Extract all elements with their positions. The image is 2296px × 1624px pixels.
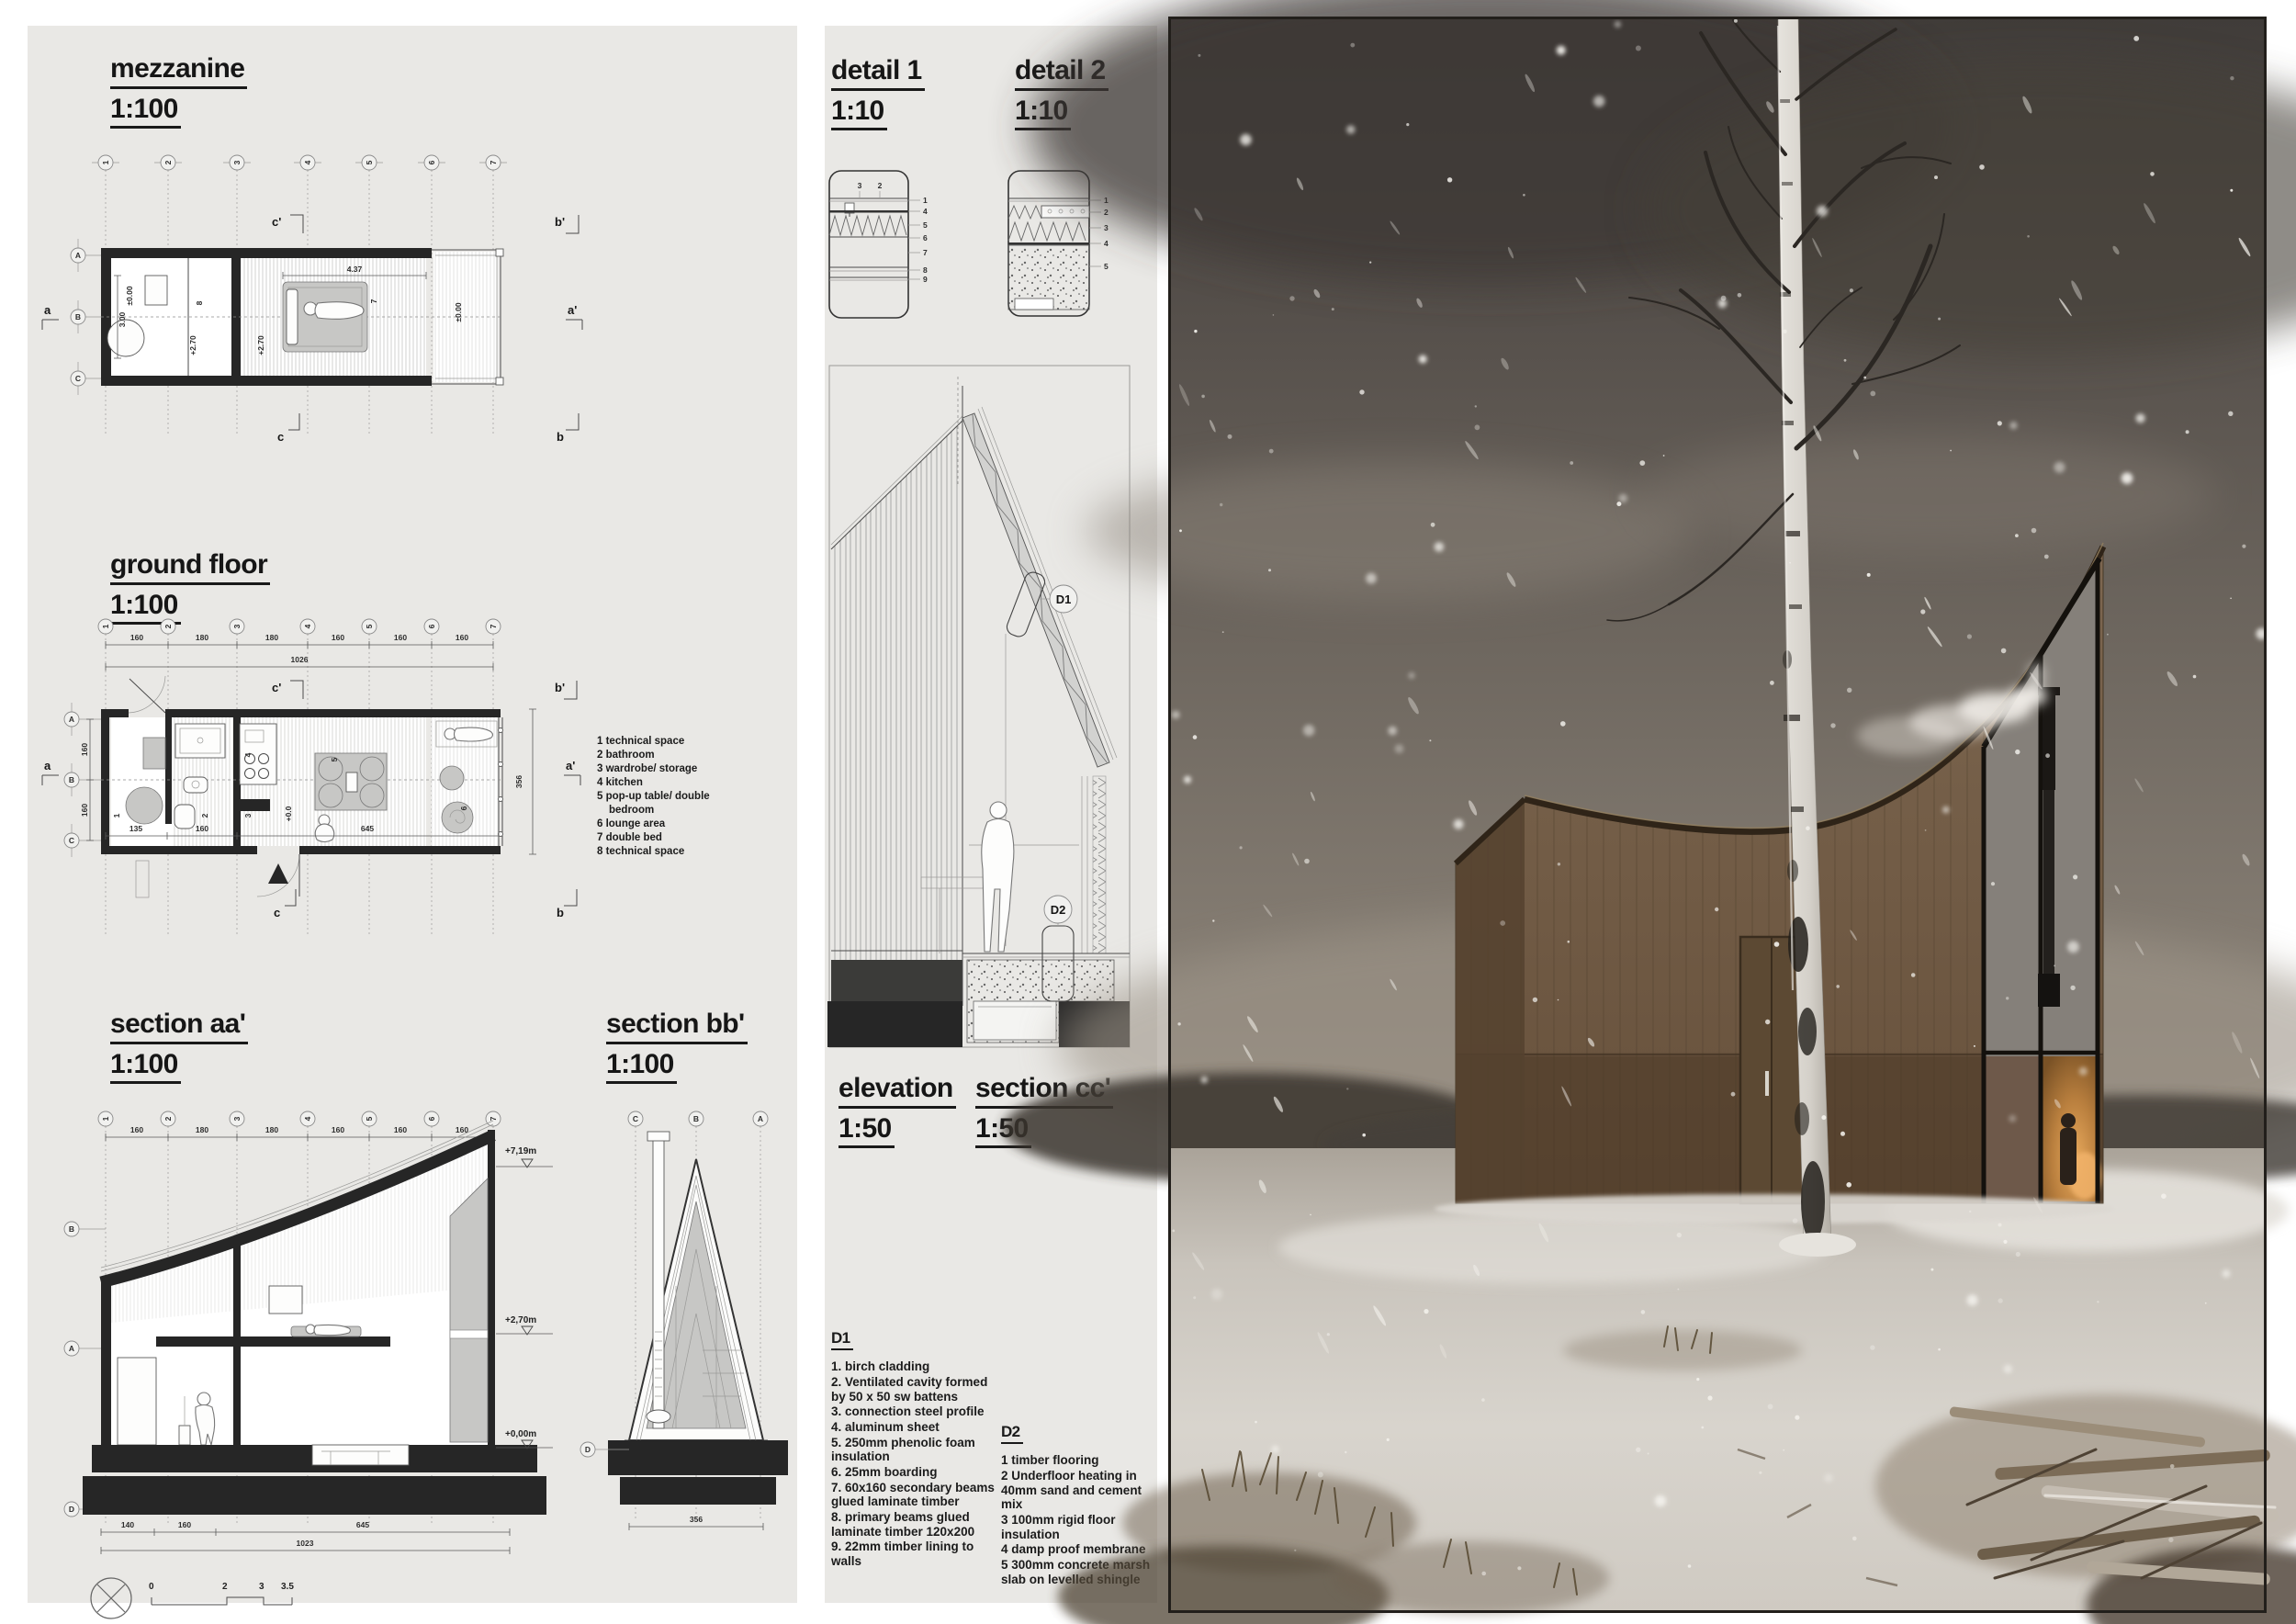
plan-body <box>101 676 503 897</box>
svg-text:4: 4 <box>1104 239 1109 248</box>
section-side <box>827 377 1130 1047</box>
title-scale: 1:50 <box>838 1115 895 1149</box>
svg-text:b: b <box>557 430 564 444</box>
svg-text:b: b <box>557 906 564 919</box>
svg-text:3.00: 3.00 <box>118 311 127 327</box>
svg-text:A: A <box>75 251 81 260</box>
svg-text:A: A <box>758 1114 763 1123</box>
svg-text:135: 135 <box>129 824 142 833</box>
svg-text:160: 160 <box>196 824 208 833</box>
svg-text:160: 160 <box>178 1520 191 1529</box>
svg-text:1: 1 <box>112 813 121 818</box>
snow-mound <box>1779 1233 1856 1257</box>
svg-text:B: B <box>69 775 74 784</box>
svg-text:7: 7 <box>923 248 928 257</box>
section-aa-drawing: 1 2 3 4 5 6 7 160 180 180 160 160 160 B … <box>37 1010 625 1617</box>
level-markers: +7,19m +2,70m +0,00m <box>496 1146 553 1449</box>
svg-text:7: 7 <box>369 299 378 303</box>
svg-text:+0.0: +0.0 <box>284 806 293 821</box>
svg-text:7: 7 <box>489 160 498 164</box>
cabin-door <box>1740 937 1805 1203</box>
detail-1-title: detail 1 1:10 <box>831 57 925 137</box>
svg-text:1: 1 <box>101 624 110 628</box>
svg-text:5: 5 <box>1104 262 1109 271</box>
svg-text:140: 140 <box>121 1520 134 1529</box>
svg-text:c': c' <box>272 681 281 694</box>
svg-text:180: 180 <box>196 633 208 642</box>
svg-text:6: 6 <box>427 1116 436 1121</box>
svg-text:3: 3 <box>858 181 862 190</box>
title-text: detail 1 <box>831 57 925 91</box>
svg-text:D1: D1 <box>1056 592 1072 606</box>
title-scale: 1:10 <box>831 97 887 131</box>
title-text: elevation <box>838 1075 956 1109</box>
double-bed <box>283 282 367 352</box>
svg-text:3: 3 <box>243 813 253 818</box>
scale-bar: 0 2 3 3.5 <box>149 1582 294 1605</box>
d1-notes: D1 1. birch cladding 2. Ventilated cavit… <box>831 1330 998 1570</box>
svg-text:C: C <box>633 1114 638 1123</box>
svg-text:0: 0 <box>149 1582 154 1592</box>
svg-text:2: 2 <box>163 160 173 164</box>
svg-text:4: 4 <box>303 624 312 628</box>
north-arrow-icon <box>91 1578 131 1618</box>
svg-text:3: 3 <box>232 624 242 628</box>
legend-item: 6 lounge area <box>597 818 720 831</box>
svg-text:2: 2 <box>163 624 173 628</box>
legend-item: 7 double bed <box>597 831 720 845</box>
svg-text:4: 4 <box>303 1116 312 1121</box>
d2-heading: D2 <box>1001 1424 1023 1444</box>
aframe-body <box>608 1132 788 1505</box>
layers <box>829 198 908 280</box>
svg-text:160: 160 <box>332 633 344 642</box>
svg-text:6: 6 <box>923 233 928 242</box>
scale-bar-block: 0 2 3 3.5 <box>73 1562 349 1620</box>
svg-text:+2,70m: +2,70m <box>505 1315 536 1325</box>
bottom-dimensions: 140 160 645 1023 <box>101 1520 510 1554</box>
svg-text:5: 5 <box>365 624 374 628</box>
svg-text:4: 4 <box>303 160 312 164</box>
svg-text:a: a <box>44 759 51 773</box>
svg-text:4: 4 <box>923 207 928 216</box>
svg-text:a': a' <box>566 759 575 773</box>
elevation-side <box>831 358 962 1047</box>
svg-text:b': b' <box>555 215 565 229</box>
svg-text:+2.70: +2.70 <box>256 335 265 355</box>
svg-text:160: 160 <box>394 633 407 642</box>
svg-text:B: B <box>75 312 81 321</box>
section-bb-drawing: C B A D 356 <box>551 1010 808 1617</box>
svg-text:9: 9 <box>923 275 928 284</box>
svg-text:+2.70: +2.70 <box>188 335 197 355</box>
svg-text:B: B <box>69 1224 74 1234</box>
svg-text:a': a' <box>568 303 577 317</box>
svg-text:A: A <box>69 1344 74 1353</box>
svg-text:4.37: 4.37 <box>347 265 363 274</box>
title-text: mezzanine <box>110 55 247 89</box>
svg-text:160: 160 <box>456 633 468 642</box>
svg-text:2: 2 <box>222 1582 228 1592</box>
door-handle <box>1765 1071 1769 1096</box>
svg-text:7: 7 <box>489 624 498 628</box>
elevation-section-cc-drawing: D1 D2 <box>822 358 1164 1067</box>
person-inside <box>2060 1128 2077 1185</box>
svg-text:3: 3 <box>232 1116 242 1121</box>
ground-floor-drawing: 1 2 3 4 5 6 7 160 180 180 160 160 160 10… <box>37 551 625 992</box>
svg-text:C: C <box>75 374 81 383</box>
svg-text:c: c <box>274 906 280 919</box>
svg-text:645: 645 <box>356 1520 369 1529</box>
svg-text:180: 180 <box>196 1125 208 1134</box>
svg-text:356: 356 <box>514 775 523 788</box>
svg-text:+0,00m: +0,00m <box>505 1429 536 1439</box>
legend-item: 1 technical space <box>597 735 720 749</box>
person-standing <box>982 802 1014 952</box>
svg-text:A: A <box>69 715 74 724</box>
svg-text:160: 160 <box>80 743 89 756</box>
person-lying <box>306 1325 351 1336</box>
svg-text:5: 5 <box>365 1116 374 1121</box>
svg-text:c: c <box>277 430 284 444</box>
legend-item: 2 bathroom <box>597 749 720 762</box>
svg-text:4: 4 <box>243 752 253 757</box>
svg-text:±0.00: ±0.00 <box>125 286 134 305</box>
svg-text:356: 356 <box>690 1515 703 1524</box>
svg-text:8: 8 <box>923 265 928 275</box>
svg-text:160: 160 <box>332 1125 344 1134</box>
svg-text:3: 3 <box>1104 223 1109 232</box>
svg-text:8: 8 <box>195 300 204 305</box>
svg-text:6: 6 <box>427 624 436 628</box>
elevation-title: elevation 1:50 <box>838 1075 956 1155</box>
detail-1-drawing: 3 2 1 4 5 6 7 8 9 <box>825 164 999 338</box>
svg-text:a: a <box>44 303 51 317</box>
svg-text:+7,19m: +7,19m <box>505 1146 536 1156</box>
svg-text:6: 6 <box>427 160 436 164</box>
winter-render-photo <box>1168 17 2267 1613</box>
section-body <box>83 1121 546 1515</box>
layers <box>1008 198 1089 310</box>
svg-text:3: 3 <box>232 160 242 164</box>
svg-text:160: 160 <box>80 804 89 817</box>
svg-text:645: 645 <box>361 824 374 833</box>
svg-text:2: 2 <box>163 1116 173 1121</box>
svg-text:160: 160 <box>394 1125 407 1134</box>
svg-text:5: 5 <box>330 757 339 761</box>
svg-text:1: 1 <box>101 160 110 164</box>
svg-text:D: D <box>585 1445 591 1454</box>
svg-text:D: D <box>69 1505 74 1514</box>
svg-text:7: 7 <box>489 1116 498 1121</box>
legend-item: 5 pop-up table/ double bedroom <box>597 790 720 818</box>
presentation-board: mezzanine 1:100 ground floor 1:100 secti… <box>0 0 2296 1624</box>
row-letters: A B C <box>71 239 101 395</box>
svg-text:c': c' <box>272 215 281 229</box>
svg-text:5: 5 <box>365 160 374 164</box>
legend-item: 3 wardrobe/ storage <box>597 762 720 776</box>
svg-text:5: 5 <box>923 220 928 230</box>
svg-text:C: C <box>69 836 74 845</box>
room-legend: 1 technical space 2 bathroom 3 wardrobe/… <box>597 735 720 859</box>
top-dimensions: 160 180 180 160 160 160 1026 <box>106 633 493 671</box>
svg-text:D2: D2 <box>1051 903 1066 917</box>
svg-text:2: 2 <box>200 813 209 818</box>
svg-text:180: 180 <box>265 1125 278 1134</box>
svg-text:b': b' <box>555 681 565 694</box>
person-lying <box>445 727 493 741</box>
svg-text:6: 6 <box>459 806 468 810</box>
d1-heading: D1 <box>831 1330 853 1350</box>
svg-text:1026: 1026 <box>291 655 309 664</box>
svg-text:160: 160 <box>130 633 143 642</box>
legend-item: 8 technical space <box>597 845 720 859</box>
plan-body: 4.37 <box>101 248 503 386</box>
svg-text:160: 160 <box>130 1125 143 1134</box>
svg-text:3: 3 <box>259 1582 264 1592</box>
leader-labels: 3 2 1 4 5 6 7 8 9 <box>858 181 928 284</box>
mezzanine-plan-drawing: 1 2 3 4 5 6 7 A B C <box>37 138 588 468</box>
bottom-dimension: 356 <box>629 1515 763 1530</box>
legend-item: 4 kitchen <box>597 776 720 790</box>
svg-text:2: 2 <box>878 181 883 190</box>
svg-text:B: B <box>693 1114 699 1123</box>
svg-text:1023: 1023 <box>297 1539 314 1548</box>
svg-text:1: 1 <box>923 196 928 205</box>
mezzanine-title: mezzanine 1:100 <box>110 55 247 135</box>
svg-text:±0.00: ±0.00 <box>454 302 463 321</box>
svg-text:3.5: 3.5 <box>281 1582 294 1592</box>
title-scale: 1:100 <box>110 96 181 130</box>
svg-text:180: 180 <box>265 633 278 642</box>
svg-text:1: 1 <box>101 1116 110 1121</box>
